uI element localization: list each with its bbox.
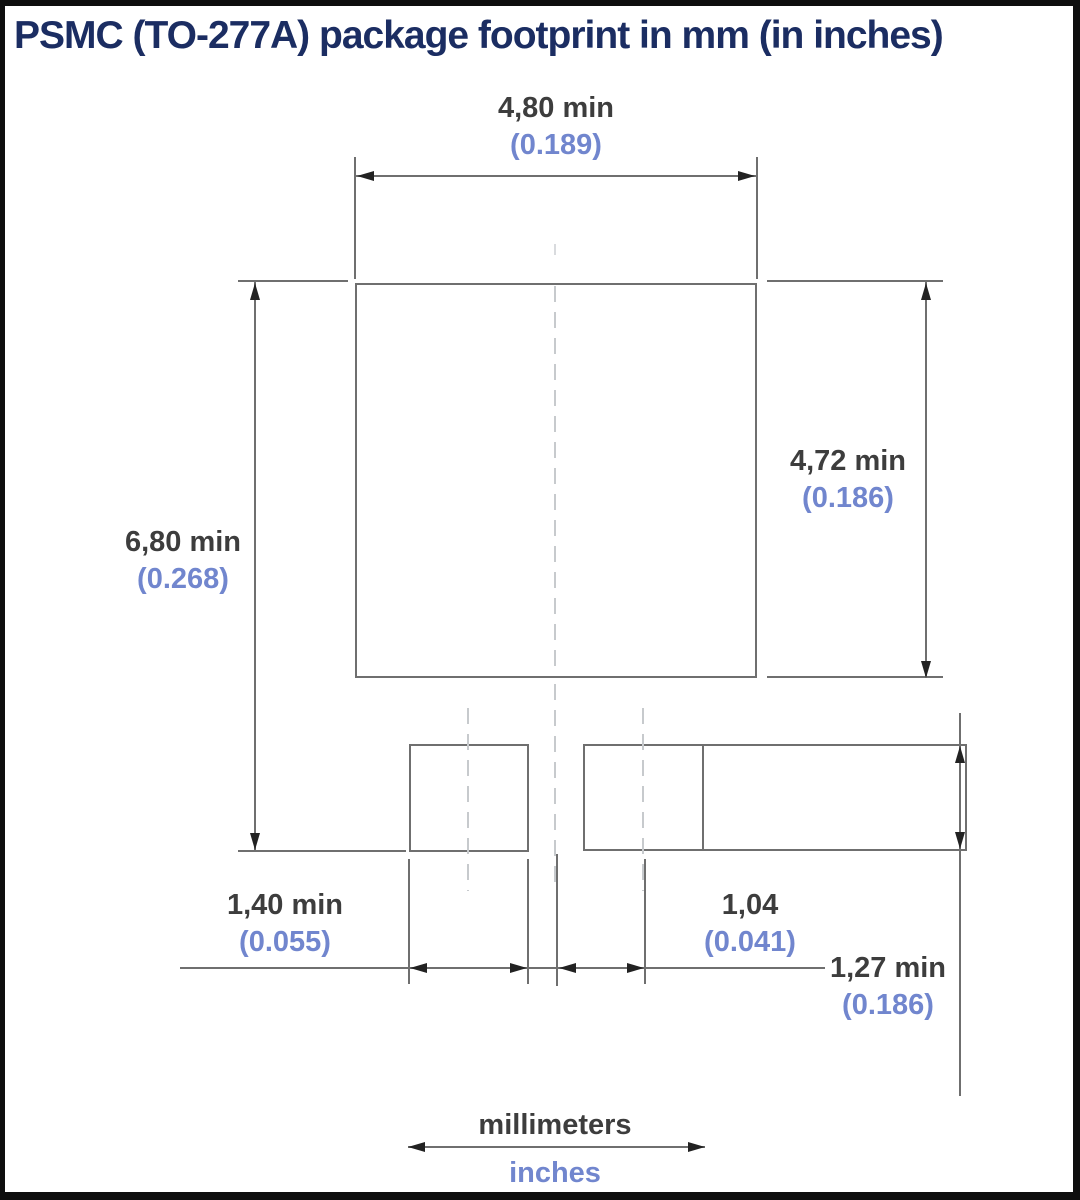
dim-center-offset-label: 1,04 (0.041) (650, 887, 850, 961)
dim-right-height-inch: (0.186) (748, 480, 948, 517)
legend-arrow-line (408, 1146, 705, 1148)
dim-top-width-line (356, 175, 756, 177)
main-pad-outline (355, 283, 757, 678)
centerline-tick-top (554, 244, 556, 255)
arrow-right-icon (627, 963, 644, 973)
arrow-up-icon (955, 746, 965, 763)
extension-line (527, 859, 529, 984)
dim-terminal-height-label: 1,27 min (0.186) (813, 950, 963, 1024)
extension-line (767, 280, 943, 282)
arrow-right-icon (510, 963, 527, 973)
dim-small-pad-width-label: 1,40 min (0.055) (185, 887, 385, 961)
dim-center-offset-mm: 1,04 (650, 887, 850, 924)
dim-center-offset-inch: (0.041) (650, 924, 850, 961)
arrow-right-icon (688, 1142, 705, 1152)
page-title: PSMC (TO-277A) package footprint in mm (… (14, 14, 1074, 58)
small-pad-centerline (467, 708, 469, 891)
large-pad-divider-line (702, 746, 704, 849)
dim-left-height-inch: (0.268) (83, 561, 283, 598)
arrow-up-icon (250, 283, 260, 300)
arrow-left-icon (408, 1142, 425, 1152)
dim-right-height-mm: 4,72 min (748, 443, 948, 480)
dim-small-pad-width-inch: (0.055) (185, 924, 385, 961)
arrow-down-icon (921, 661, 931, 678)
extension-line (767, 676, 943, 678)
main-pad-centerline (554, 286, 556, 675)
arrow-left-icon (357, 171, 374, 181)
dim-top-width-label: 4,80 min (0.189) (436, 90, 676, 164)
legend-inches-label: inches (435, 1156, 675, 1190)
dim-left-height-mm: 6,80 min (83, 524, 283, 561)
arrow-right-icon (738, 171, 755, 181)
drawing-sheet: PSMC (TO-277A) package footprint in mm (… (0, 0, 1080, 1200)
dim-terminal-height-inch: (0.186) (813, 987, 963, 1024)
large-pad-outline (583, 744, 967, 851)
dim-top-width-mm: 4,80 min (436, 90, 676, 127)
dim-bottom-line (180, 967, 825, 969)
arrow-left-icon (410, 963, 427, 973)
extension-line (238, 850, 406, 852)
small-pad-outline (409, 744, 529, 852)
dim-left-height-label: 6,80 min (0.268) (83, 524, 283, 598)
extension-line (756, 157, 758, 279)
dim-top-width-inch: (0.189) (436, 127, 676, 164)
arrow-up-icon (921, 283, 931, 300)
dim-terminal-height-line (959, 713, 961, 1096)
arrow-down-icon (250, 833, 260, 850)
arrow-down-icon (955, 832, 965, 849)
legend-millimeters-label: millimeters (435, 1108, 675, 1142)
dim-small-pad-width-mm: 1,40 min (185, 887, 385, 924)
dim-right-height-label: 4,72 min (0.186) (748, 443, 948, 517)
arrow-left-icon (559, 963, 576, 973)
extension-line (644, 859, 646, 984)
